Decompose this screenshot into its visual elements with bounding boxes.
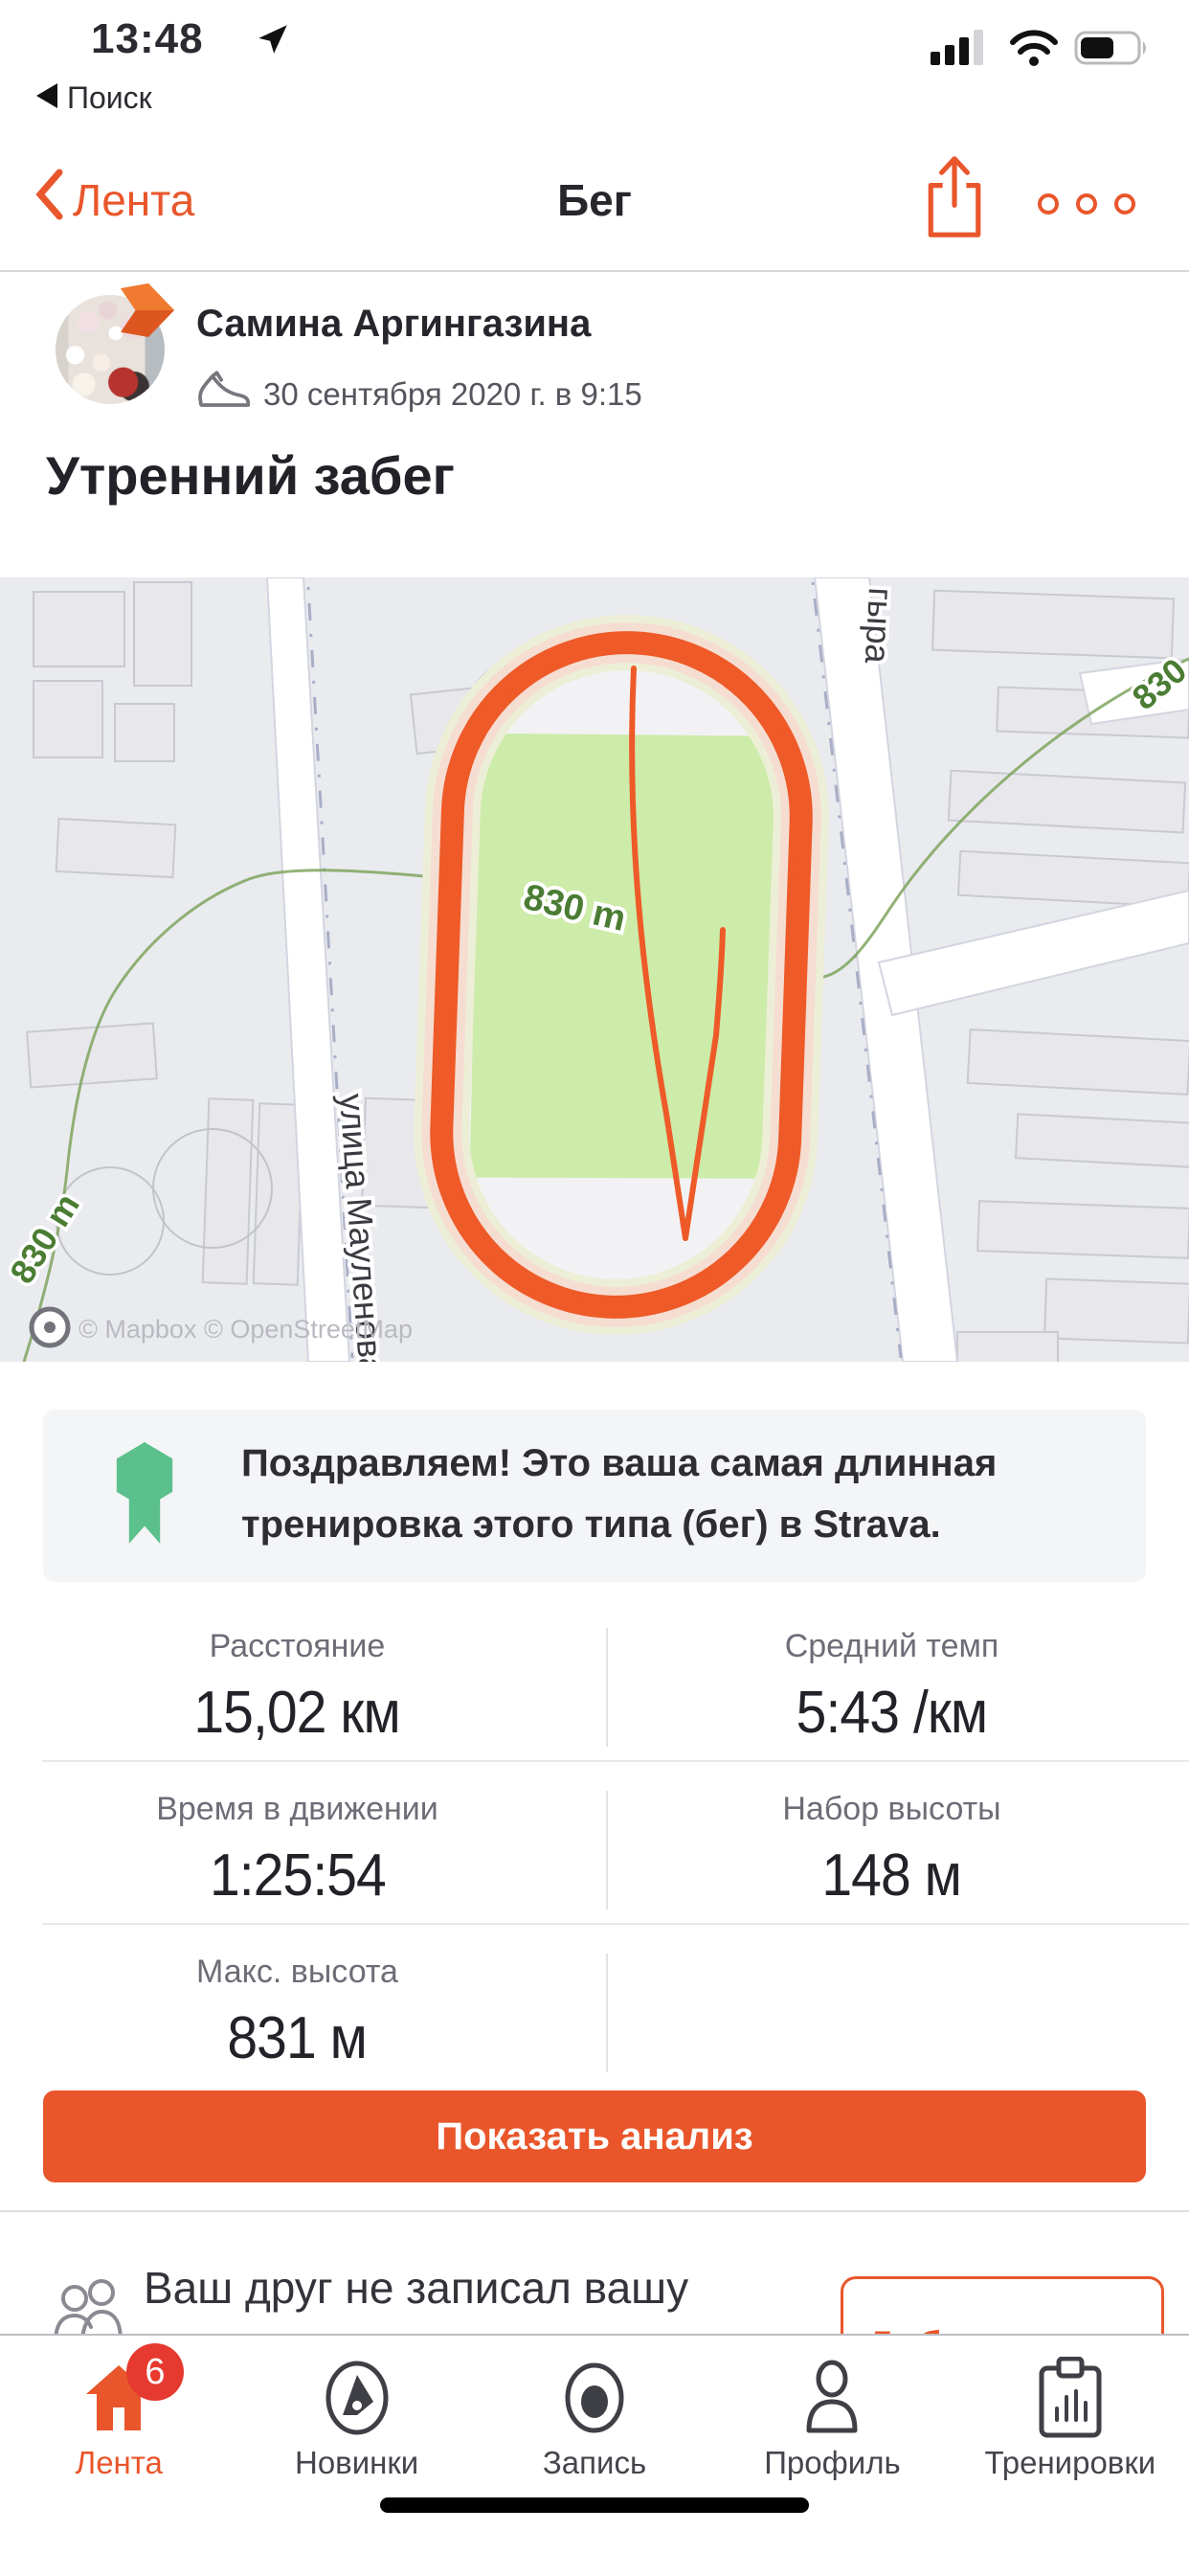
run-track	[430, 631, 808, 1314]
stats-row-1: Расстояние 15,02 км Средний темп 5:43 /к…	[0, 1618, 1189, 1762]
signal-icon	[931, 29, 994, 72]
achievement-ribbon-icon	[107, 1442, 182, 1550]
compass-icon	[322, 2357, 393, 2439]
avatar-arrow-badge-icon	[121, 283, 174, 342]
training-icon	[1035, 2357, 1106, 2439]
divider	[42, 1923, 1189, 1925]
profile-icon	[796, 2357, 867, 2439]
stat-moving-time: Время в движении 1:25:54	[0, 1781, 594, 1925]
show-analysis-button[interactable]: Показать анализ	[43, 2090, 1146, 2182]
stat-avg-pace: Средний темп 5:43 /км	[594, 1618, 1189, 1762]
tab-record[interactable]: Запись	[476, 2336, 713, 2576]
map-canvas: 830 m 830 m 830 улица Мауленова гыра © M…	[0, 577, 1189, 1362]
friend-prompt-text: Ваш друг не записал вашу	[144, 2262, 688, 2314]
stats-row-2: Время в движении 1:25:54 Набор высоты 14…	[0, 1781, 1189, 1925]
street-label-right: гыра	[858, 587, 901, 666]
nav-bar: Лента Бег	[0, 134, 1189, 272]
divider	[606, 1954, 608, 2072]
achievement-text: Поздравляем! Это ваша самая длинная трен…	[241, 1433, 1084, 1555]
stat-elev-gain: Набор высоты 148 м	[594, 1781, 1189, 1925]
home-indicator[interactable]	[380, 2497, 809, 2513]
tab-bar: Лента 6 Новинки Запись Профиль	[0, 2334, 1189, 2576]
mapbox-logo-icon	[32, 1309, 68, 1345]
stats-row-3: Макс. высота 831 м	[0, 1944, 1189, 2088]
wifi-icon	[1009, 29, 1059, 72]
notification-badge: 6	[126, 2343, 184, 2401]
tab-whats-new[interactable]: Новинки	[237, 2336, 475, 2576]
map-attribution: © Mapbox © OpenStreetMap	[79, 1315, 413, 1344]
stat-max-elev: Макс. высота 831 м	[0, 1944, 594, 2088]
stat-empty-cell	[594, 1944, 1189, 2088]
divider	[0, 2210, 1189, 2212]
record-icon	[559, 2357, 630, 2439]
back-triangle-icon	[36, 80, 57, 116]
divider	[606, 1628, 608, 1747]
location-arrow-icon	[257, 23, 289, 60]
athlete-name[interactable]: Самина Аргингазина	[196, 303, 591, 346]
page-title: Бег	[0, 174, 1189, 226]
divider	[42, 1760, 1189, 1762]
share-button[interactable]	[923, 153, 986, 246]
tab-feed[interactable]: Лента 6	[0, 2336, 237, 2576]
run-shoe-icon	[194, 368, 252, 421]
route-map[interactable]: 830 m 830 m 830 улица Мауленова гыра © M…	[0, 577, 1189, 1362]
more-options-button[interactable]	[1034, 190, 1139, 223]
tab-training[interactable]: Тренировки	[952, 2336, 1189, 2576]
tab-profile[interactable]: Профиль	[713, 2336, 951, 2576]
battery-icon	[1074, 29, 1155, 72]
stat-distance: Расстояние 15,02 км	[0, 1618, 594, 1762]
activity-date: 30 сентября 2020 г. в 9:15	[263, 376, 642, 413]
status-time: 13:48	[91, 15, 204, 63]
divider	[606, 1791, 608, 1909]
activity-title: Утренний забег	[46, 444, 455, 507]
back-to-app-link[interactable]: Поиск	[36, 80, 152, 116]
